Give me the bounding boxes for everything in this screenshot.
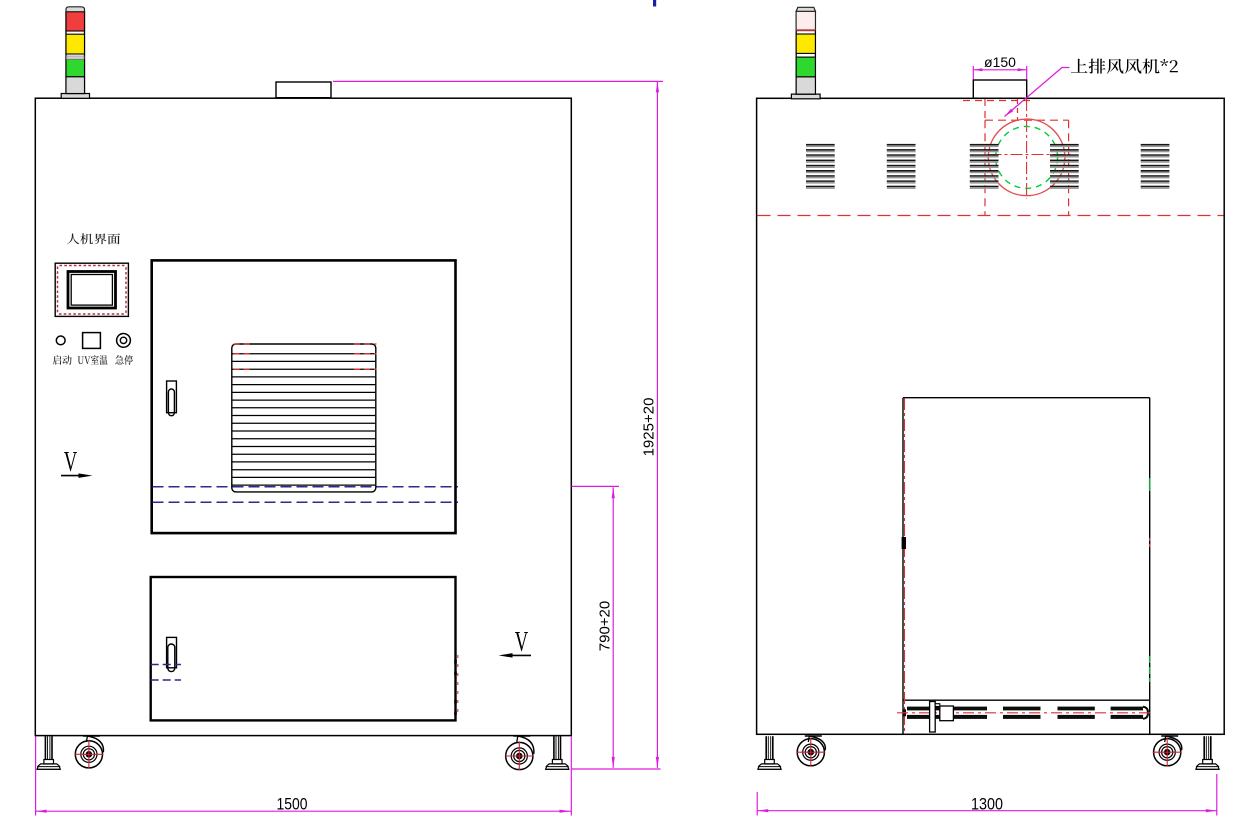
svg-text:1925+20: 1925+20 (641, 398, 658, 457)
svg-text:ø150: ø150 (984, 54, 1016, 70)
svg-text:1300: 1300 (971, 796, 1003, 814)
svg-text:790+20: 790+20 (597, 601, 614, 651)
svg-text:1500: 1500 (277, 796, 308, 814)
svg-text:V: V (64, 447, 78, 478)
svg-text:V: V (515, 627, 529, 658)
